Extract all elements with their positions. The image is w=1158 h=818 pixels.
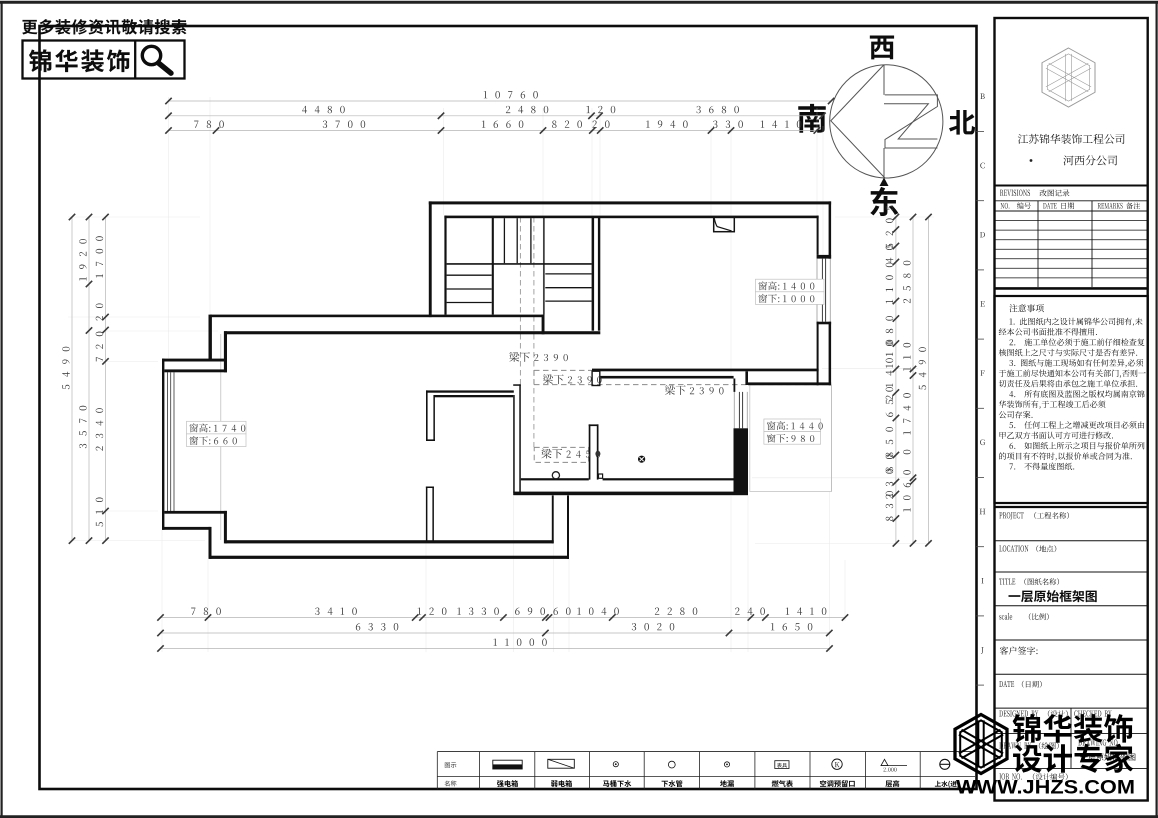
svg-text:WWW.JHZS.COM: WWW.JHZS.COM	[956, 778, 1135, 799]
